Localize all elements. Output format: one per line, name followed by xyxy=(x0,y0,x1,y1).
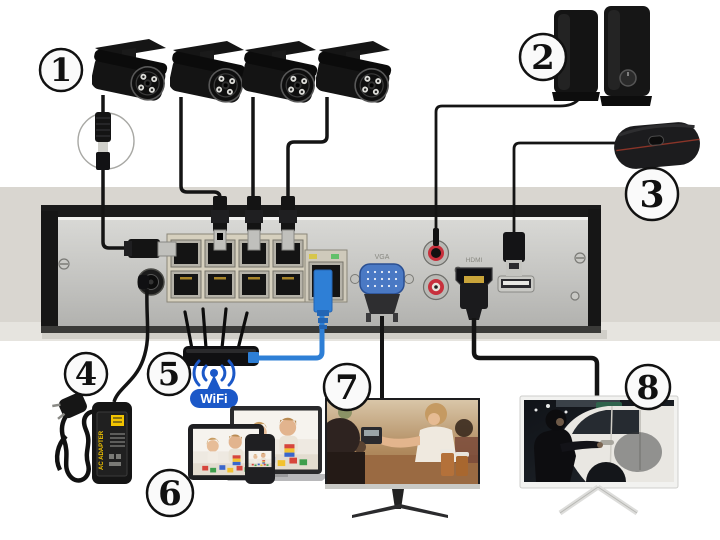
svg-text:1: 1 xyxy=(50,51,72,89)
usb-port xyxy=(498,276,534,292)
svg-text:7: 7 xyxy=(335,368,359,408)
client-devices xyxy=(188,406,330,484)
vga-port-label: VGA xyxy=(375,254,390,261)
rca-audio-in-jack xyxy=(424,275,449,300)
wifi-label: WiFi xyxy=(200,391,227,406)
callout-7: 7 xyxy=(324,364,370,410)
monitor-hdmi xyxy=(520,396,678,513)
callout-5: 5 xyxy=(148,353,190,395)
security-system-diagram: VGA HDMI xyxy=(0,0,720,540)
rj45-plug-cam4 xyxy=(279,196,297,250)
svg-text:8: 8 xyxy=(637,368,660,407)
svg-text:5: 5 xyxy=(158,355,180,393)
wifi-icon: WiFi xyxy=(190,361,238,408)
camera-2 xyxy=(165,41,246,105)
camera-cable-4 xyxy=(288,97,327,198)
hdmi-port-label: HDMI xyxy=(466,257,483,264)
mouse xyxy=(612,120,701,170)
callout-8: 8 xyxy=(626,365,670,409)
camera-1 xyxy=(87,39,168,103)
callout-1: 1 xyxy=(40,49,82,91)
monitor-hdmi-screen xyxy=(524,400,674,482)
smartphone xyxy=(245,434,275,484)
callout-2: 2 xyxy=(520,34,566,80)
camera-4 xyxy=(311,41,392,105)
callout-4: 4 xyxy=(65,353,107,395)
scroll-wheel xyxy=(648,135,664,145)
callout-3: 3 xyxy=(626,168,678,220)
adapter-label: AC ADAPTER xyxy=(99,430,105,470)
camera-3 xyxy=(237,41,318,105)
connector-detail xyxy=(78,112,134,170)
svg-text:6: 6 xyxy=(158,474,182,514)
monitor-vga-screen xyxy=(320,400,478,484)
svg-text:3: 3 xyxy=(639,174,664,216)
svg-text:4: 4 xyxy=(75,355,97,393)
speaker-right xyxy=(600,6,652,106)
rj45-plug-cam3 xyxy=(245,196,263,250)
camera-cable-2 xyxy=(181,97,220,198)
rj45-plug-cam2 xyxy=(211,196,229,250)
callout-6: 6 xyxy=(147,470,193,516)
power-adapter: AC ADAPTER xyxy=(51,391,132,484)
rj45-plug-cam1-horizontal xyxy=(124,239,176,258)
svg-text:2: 2 xyxy=(531,38,555,78)
monitor-vga xyxy=(320,398,480,518)
